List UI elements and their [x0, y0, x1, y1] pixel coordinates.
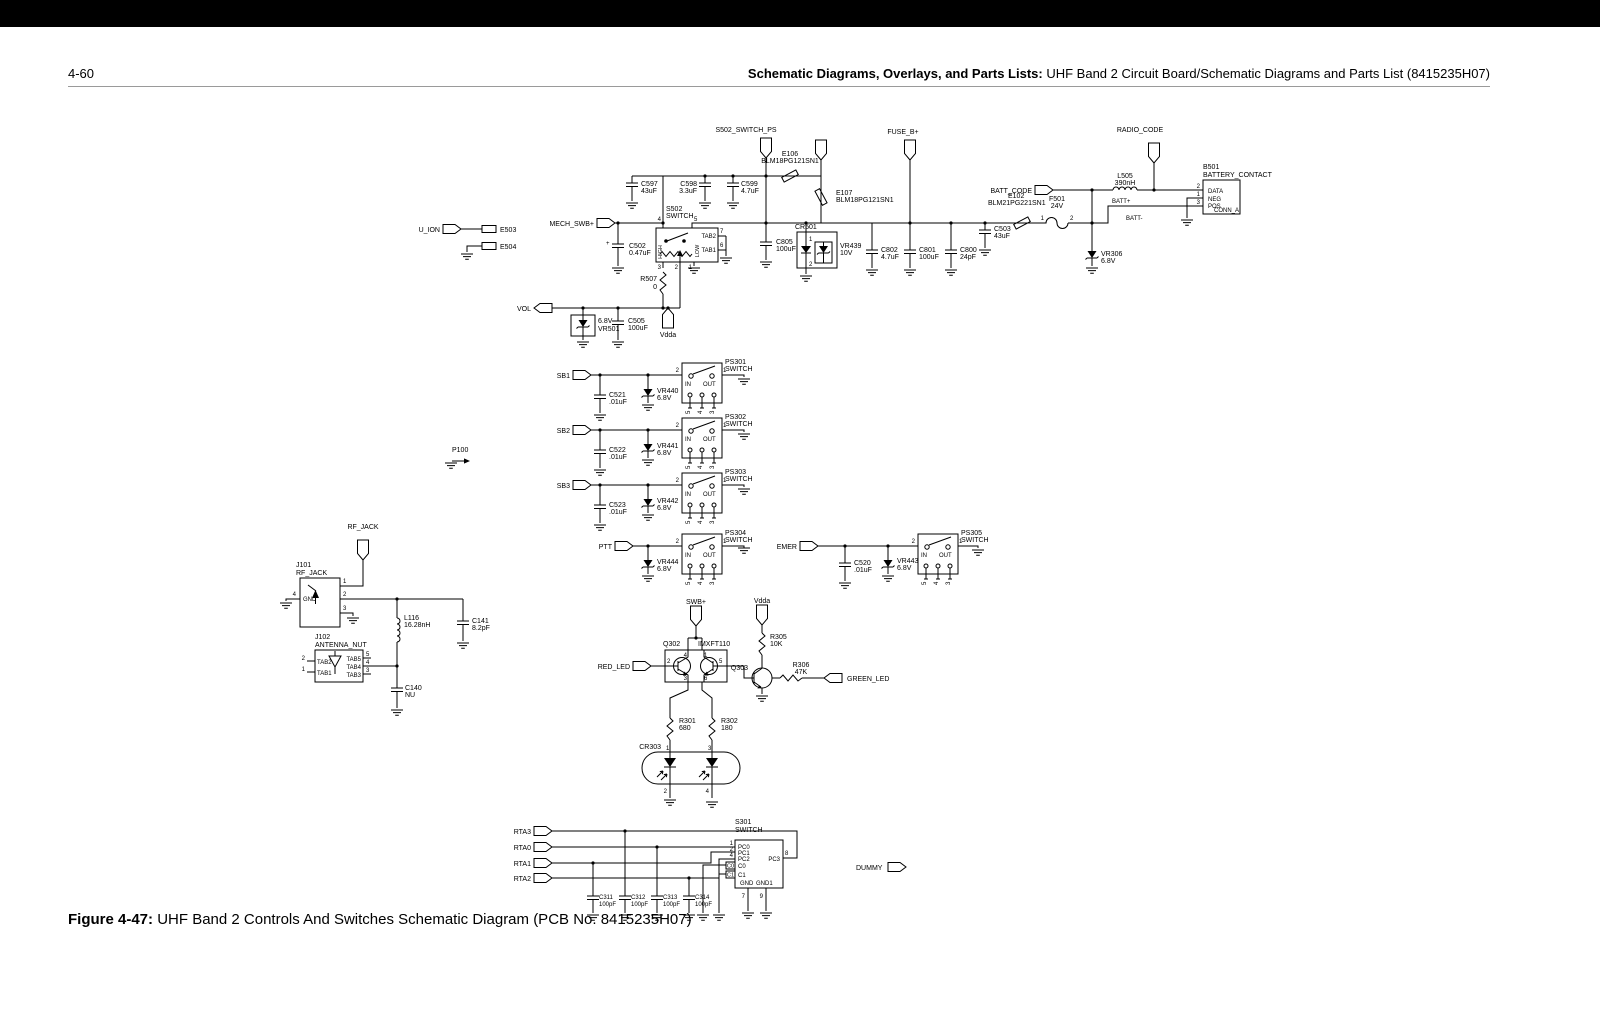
rf-grounds — [280, 603, 469, 715]
vr444-zener — [642, 560, 655, 569]
sb3-label: SB3 — [557, 483, 570, 490]
q302-ref: Q302 — [663, 641, 680, 648]
s301-pc2: PC2 — [738, 857, 750, 863]
l505-inductor — [1113, 187, 1137, 190]
c312-val: 100pF — [631, 902, 648, 908]
ps305-pin2: 2 — [912, 539, 916, 545]
keypad-junctions — [591, 829, 690, 879]
c805-capacitor — [760, 242, 772, 246]
vdda-label: Vdda — [660, 332, 676, 339]
q302-transistor-pack — [665, 650, 727, 682]
c312-ref: C312 — [631, 895, 646, 901]
q302-val: IMXFT110 — [698, 641, 730, 648]
fuse-f501 — [1044, 218, 1068, 229]
ps301-pin3: 3 — [710, 410, 716, 414]
q303-transistor — [752, 668, 772, 689]
sb1-connector — [573, 371, 591, 380]
j101-pin1: 1 — [343, 579, 347, 585]
vdda-connector — [663, 308, 674, 328]
s502-pin4: 4 — [658, 217, 662, 223]
e102-val: BLM21PG221SN1 — [988, 200, 1046, 207]
f501-val: 24V — [1051, 203, 1064, 210]
r306-val: 47K — [795, 669, 808, 676]
c522-capacitor — [594, 450, 606, 454]
ps302-pin3: 3 — [710, 465, 716, 469]
ps304-val: SWITCH — [725, 537, 753, 544]
vr440-zener — [642, 389, 655, 398]
c521-ref: C521 — [609, 392, 626, 399]
j102-tab4: TAB4 — [346, 665, 361, 671]
c522-ref: C522 — [609, 447, 626, 454]
rta1-label: RTA1 — [514, 861, 531, 868]
q302-pin3: 3 — [684, 676, 688, 682]
c314-ref: C314 — [695, 895, 710, 901]
ps304-pin5: 5 — [686, 581, 692, 585]
ps303-pin3: 3 — [710, 520, 716, 524]
c521-val: .01uF — [609, 399, 627, 406]
vr306-zener — [1086, 251, 1099, 260]
l116-val: 16.28nH — [404, 622, 430, 629]
cr303-ref: CR303 — [639, 744, 661, 751]
ps305-pin4: 4 — [934, 581, 940, 585]
c521-capacitor — [594, 395, 606, 399]
vr443-ref: VR443 — [897, 558, 919, 565]
sb1-label: SB1 — [557, 373, 570, 380]
rf-jack-label: RF_JACK — [347, 524, 378, 531]
s301-c1-tag: C1 — [727, 873, 734, 879]
c598-capacitor — [699, 183, 711, 187]
cr501-pin2: 2 — [809, 262, 813, 268]
vr443-zener — [882, 560, 895, 569]
r305-resistor — [759, 633, 765, 655]
ps303-val: SWITCH — [725, 476, 753, 483]
cr501-block — [797, 232, 837, 268]
b501-conn: CONN_A — [1214, 208, 1239, 214]
ps302-pin4: 4 — [698, 465, 704, 469]
ps305-val: SWITCH — [961, 537, 989, 544]
c802-capacitor — [866, 250, 878, 254]
s301-pin9: 9 — [760, 894, 764, 900]
c800-capacitor — [945, 250, 957, 254]
rta1-connector — [534, 859, 552, 868]
j102-pin4: 4 — [366, 660, 370, 666]
vr441-zener — [642, 444, 655, 453]
ps303-pin2: 2 — [676, 478, 680, 484]
e107-val: BLM18PG121SN1 — [836, 197, 894, 204]
rf-jack-connector — [358, 540, 369, 560]
batt-minus-label: BATT- — [1126, 216, 1143, 222]
j101-gnd: GND — [303, 597, 317, 603]
ps301-out: OUT — [703, 382, 716, 388]
vol-label: VOL — [517, 306, 531, 313]
rta2-connector — [534, 874, 552, 883]
ps301-pin5: 5 — [686, 410, 692, 414]
c503-ref: C503 — [994, 226, 1011, 233]
c800-val: 24pF — [960, 254, 976, 261]
cr303-dual-led — [642, 752, 740, 784]
swb-label: SWB+ — [686, 599, 706, 606]
power-grounds — [577, 203, 1193, 347]
ps302-pin5: 5 — [686, 465, 692, 469]
vr443-val: 6.8V — [897, 565, 912, 572]
cr501-ref: CR501 — [795, 224, 817, 231]
s301-c0-tag: C0 — [727, 864, 734, 870]
s502-tab1: TAB1 — [701, 248, 716, 254]
vr439-ref: VR439 — [840, 243, 862, 250]
section-rf: RF_JACK J101 RF_JACK 1 2 3 4 GND L116 16… — [280, 524, 490, 715]
red-led-connector — [633, 662, 651, 671]
c801-capacitor — [904, 250, 916, 254]
dummy-connector — [888, 863, 906, 872]
s502-pin3: 3 — [658, 265, 662, 271]
j101-pin2: 2 — [343, 592, 347, 598]
vr444-val: 6.8V — [657, 566, 672, 573]
l116-ref: L116 — [404, 615, 419, 622]
ptt-label: PTT — [599, 544, 613, 551]
ps302-ref: PS302 — [725, 414, 746, 421]
c520-val: .01uF — [854, 567, 872, 574]
s502-high: HIGH — [658, 245, 664, 259]
s502-pin5: 5 — [694, 217, 698, 223]
mech-swb-label: MECH_SWB+ — [549, 221, 594, 228]
cr303-pin2: 2 — [664, 789, 668, 795]
f501-pin1: 1 — [1041, 216, 1045, 222]
figure-caption: Figure 4-47: UHF Band 2 Controls And Swi… — [68, 911, 692, 928]
vr306-val: 6.8V — [1101, 258, 1116, 265]
rta0-connector — [534, 843, 552, 852]
c502-ref: C502 — [629, 243, 646, 250]
vr439-val: 10V — [840, 250, 853, 257]
c802-ref: C802 — [881, 247, 898, 254]
e504-jumper — [482, 243, 496, 250]
ps302-val: SWITCH — [725, 421, 753, 428]
rta0-label: RTA0 — [514, 845, 531, 852]
r302-resistor — [709, 718, 715, 740]
j102-tab2: TAB2 — [317, 660, 332, 666]
j102-ref: J102 — [315, 634, 330, 641]
s301-c0: C0 — [738, 864, 746, 870]
red-led-label: RED_LED — [598, 664, 630, 671]
c141-val: 8.2pF — [472, 625, 490, 632]
batt-code-label: BATT_CODE — [991, 188, 1033, 195]
vr442-zener — [642, 499, 655, 508]
ps301-ref: PS301 — [725, 359, 746, 366]
c597-capacitor — [626, 183, 638, 187]
sb3-connector — [573, 481, 591, 490]
ps305-out: OUT — [939, 553, 952, 559]
c598-val: 3.3uF — [679, 188, 697, 195]
b501-pin1: 1 — [1197, 192, 1201, 198]
c502-val: 0.47uF — [629, 250, 651, 257]
s502-tab2: TAB2 — [701, 234, 716, 240]
e106-val: BLM18PG121SN1 — [761, 158, 819, 165]
j102-tab1: TAB1 — [317, 671, 332, 677]
q302-pin6: 6 — [704, 676, 708, 682]
c523-capacitor — [594, 505, 606, 509]
sb2-connector — [573, 426, 591, 435]
b501-pin2: 2 — [1197, 184, 1201, 190]
s502-pin2: 2 — [675, 265, 679, 271]
r507-val: 0 — [653, 284, 657, 291]
section-keypad: RTA3 RTA0 RTA1 RTA2 C311 100pF C312 100p… — [514, 819, 906, 920]
ps301-pin4: 4 — [698, 410, 704, 414]
b501-val: BATTERY_CONTACT — [1203, 172, 1273, 179]
s502-pin7: 7 — [720, 229, 724, 235]
ground-icon — [720, 258, 732, 263]
c523-val: .01uF — [609, 509, 627, 516]
c505-capacitor — [612, 321, 624, 325]
c597-val: 43uF — [641, 188, 657, 195]
sb2-label: SB2 — [557, 428, 570, 435]
cr303-pin1: 1 — [666, 746, 670, 752]
c598-ref: C598 — [680, 181, 697, 188]
section-switches: SB1 C521 .01uF VR440 6.8V PS301 SWITCH 2… — [445, 359, 989, 588]
s301-ref: S301 — [735, 819, 751, 826]
s301-pc3: PC3 — [768, 857, 780, 863]
cr303-pin3: 3 — [708, 746, 712, 752]
radio-code-connector — [1149, 143, 1160, 163]
p100-label: P100 — [452, 447, 468, 454]
e503-jumper — [482, 226, 496, 233]
c505-ref: C505 — [628, 318, 645, 325]
r507-ref: R507 — [640, 276, 657, 283]
r302-val: 180 — [721, 725, 733, 732]
l505-ref: L505 — [1117, 173, 1133, 180]
p100-test-point — [445, 458, 470, 468]
ps303-pin4: 4 — [698, 520, 704, 524]
c311-val: 100pF — [599, 902, 616, 908]
r306-ref: R306 — [793, 662, 810, 669]
c597-ref: C597 — [641, 181, 658, 188]
document-page: { "page": { "page_number": "4-60", "head… — [0, 0, 1600, 1035]
b501-ref: B501 — [1203, 164, 1219, 171]
r305-val: 10K — [770, 641, 783, 648]
section-led: SWB+ Vdda RED_LED GREEN_LED Q302 IMXFT11… — [598, 598, 890, 807]
s502-pin6: 6 — [720, 243, 724, 249]
mech-swb-connector — [597, 219, 615, 228]
batt-plus-label: BATT+ — [1112, 199, 1131, 205]
led-wires — [651, 625, 824, 798]
q302-pin5: 5 — [719, 659, 723, 665]
c800-ref: C800 — [960, 247, 977, 254]
s502-switch-ps-label: S502_SWITCH_PS — [715, 127, 776, 134]
ps304-out: OUT — [703, 553, 716, 559]
ps301-val: SWITCH — [725, 366, 753, 373]
section-power: U_ION E503 E504 MECH_SWB+ + C502 0.47uF … — [419, 127, 1273, 347]
ps304-in: IN — [685, 553, 691, 559]
ps304-pin4: 4 — [698, 581, 704, 585]
s301-pin4: 4 — [730, 853, 734, 859]
vr442-ref: VR442 — [657, 498, 679, 505]
vr441-val: 6.8V — [657, 450, 672, 457]
s502-switch-ps-connector — [761, 138, 772, 158]
b501-data: DATA — [1208, 189, 1223, 195]
c141-ref: C141 — [472, 618, 489, 625]
ps301-in: IN — [685, 382, 691, 388]
vol-connector — [534, 304, 552, 313]
c311-ref: C311 — [599, 895, 614, 901]
c502-plus: + — [606, 241, 610, 247]
ps305-ref: PS305 — [961, 530, 982, 537]
r301-resistor — [667, 718, 673, 740]
c503-val: 43uF — [994, 233, 1010, 240]
s502-low: LOW — [695, 244, 701, 257]
j102-pin1: 1 — [302, 667, 306, 673]
s301-gnd1: GND1 — [756, 881, 773, 887]
fuse-b-label: FUSE_B+ — [887, 129, 918, 136]
radio-code-label: RADIO_CODE — [1117, 127, 1164, 134]
ps304-ref: PS304 — [725, 530, 746, 537]
ps303-ref: PS303 — [725, 469, 746, 476]
j101-pin3: 3 — [343, 606, 347, 612]
r301-ref: R301 — [679, 718, 696, 725]
j101-pin4: 4 — [293, 592, 297, 598]
j102-pin5: 5 — [366, 652, 370, 658]
q302-pin2: 2 — [667, 659, 671, 665]
ps305-in: IN — [921, 553, 927, 559]
emer-label: EMER — [777, 544, 797, 551]
e106-ref: E106 — [782, 151, 798, 158]
c140-val: NU — [405, 692, 415, 699]
junction-dot — [694, 636, 697, 639]
ps302-pin2: 2 — [676, 423, 680, 429]
e503-label: E503 — [500, 227, 516, 234]
ps303-pin5: 5 — [686, 520, 692, 524]
c314-capacitor — [683, 896, 695, 900]
fuse-b-connector — [905, 140, 916, 160]
ps305-pin5: 5 — [922, 581, 928, 585]
c523-ref: C523 — [609, 502, 626, 509]
c801-val: 100uF — [919, 254, 939, 261]
batt-code-connector — [1035, 186, 1053, 195]
s502-val: SWITCH — [666, 213, 694, 220]
c505-val: 100uF — [628, 325, 648, 332]
cr303-pin4: 4 — [706, 789, 710, 795]
c140-ref: C140 — [405, 685, 422, 692]
c502-capacitor — [612, 244, 624, 248]
figure-caption-bold: Figure 4-47: — [68, 911, 153, 928]
e107-ref: E107 — [836, 190, 852, 197]
l116-inductor — [397, 618, 400, 642]
c313-val: 100pF — [663, 902, 680, 908]
ps303-in: IN — [685, 492, 691, 498]
b501-pin3: 3 — [1197, 200, 1201, 206]
c520-ref: C520 — [854, 560, 871, 567]
ps302-out: OUT — [703, 437, 716, 443]
j101-ref: J101 — [296, 562, 311, 569]
u-ion-connector — [443, 225, 461, 234]
c141-capacitor — [457, 621, 469, 625]
e504-label: E504 — [500, 244, 516, 251]
swb-connector — [691, 606, 702, 626]
vr444-ref: VR444 — [657, 559, 679, 566]
j102-tab3: TAB3 — [346, 673, 361, 679]
r305-ref: R305 — [770, 634, 787, 641]
r301-val: 680 — [679, 725, 691, 732]
ps304-pin3: 3 — [710, 581, 716, 585]
c599-val: 4.7uF — [741, 188, 759, 195]
c805-ref: C805 — [776, 239, 793, 246]
vdda-led-connector — [757, 605, 768, 625]
f501-ref: F501 — [1049, 196, 1065, 203]
ps305-pin3: 3 — [946, 581, 952, 585]
j102-pin3: 3 — [366, 668, 370, 674]
b501-neg: NEG — [1208, 197, 1221, 203]
unnamed-top-connector — [816, 140, 827, 160]
j102-val: ANTENNA_NUT — [315, 642, 367, 649]
green-led-connector — [824, 674, 842, 683]
c520-capacitor — [839, 563, 851, 567]
rta3-connector — [534, 827, 552, 836]
l505-val: 390nH — [1115, 180, 1136, 187]
ps304-pin2: 2 — [676, 539, 680, 545]
schematic-canvas: U_ION E503 E504 MECH_SWB+ + C502 0.47uF … — [0, 0, 1600, 1035]
cr501-pin1: 1 — [809, 237, 813, 243]
u-ion-label: U_ION — [419, 227, 440, 234]
rta2-label: RTA2 — [514, 876, 531, 883]
c503-capacitor — [979, 230, 991, 234]
c802-val: 4.7uF — [881, 254, 899, 261]
c313-capacitor — [651, 896, 663, 900]
s301-switch-box — [726, 840, 783, 888]
j102-pin2: 2 — [302, 656, 306, 662]
vr306-ref: VR306 — [1101, 251, 1123, 258]
q303-ref: Q303 — [731, 665, 748, 672]
s301-pin8: 8 — [785, 851, 789, 857]
s502-ref: S502 — [666, 206, 682, 213]
c801-ref: C801 — [919, 247, 936, 254]
s301-val: SWITCH — [735, 827, 763, 834]
c599-ref: C599 — [741, 181, 758, 188]
c313-ref: C313 — [663, 895, 678, 901]
rf-wires — [286, 560, 463, 708]
c312-capacitor — [619, 896, 631, 900]
dummy-label: DUMMY — [856, 865, 883, 872]
ps302-in: IN — [685, 437, 691, 443]
s301-c1: C1 — [738, 873, 746, 879]
c140-capacitor — [391, 688, 403, 692]
vr501-ref: VR501 — [598, 326, 620, 333]
s301-gnd: GND — [740, 881, 754, 887]
power-junctions — [581, 174, 1155, 309]
c522-val: .01uF — [609, 454, 627, 461]
c311-capacitor — [587, 896, 599, 900]
ps303-out: OUT — [703, 492, 716, 498]
emer-connector — [800, 542, 818, 551]
figure-caption-rest: UHF Band 2 Controls And Switches Schemat… — [153, 911, 692, 928]
j102-tab5: TAB5 — [346, 657, 361, 663]
vdda-led-label: Vdda — [754, 598, 770, 605]
f501-pin2: 2 — [1070, 216, 1074, 222]
vr501-val: 6.8V — [598, 318, 613, 325]
vr441-ref: VR441 — [657, 443, 679, 450]
s301-pin7: 7 — [742, 894, 746, 900]
c599-capacitor — [727, 183, 739, 187]
ptt-connector — [615, 542, 633, 551]
vr440-ref: VR440 — [657, 388, 679, 395]
r507-resistor — [660, 272, 666, 294]
ps301-pin2: 2 — [676, 368, 680, 374]
c805-val: 100uF — [776, 246, 796, 253]
vr440-val: 6.8V — [657, 395, 672, 402]
r302-ref: R302 — [721, 718, 738, 725]
rta3-label: RTA3 — [514, 829, 531, 836]
vr442-val: 6.8V — [657, 505, 672, 512]
green-led-label: GREEN_LED — [847, 676, 889, 683]
j101-val: RF_JACK — [296, 570, 327, 577]
ground-icon — [461, 254, 473, 259]
c314-val: 100pF — [695, 902, 712, 908]
